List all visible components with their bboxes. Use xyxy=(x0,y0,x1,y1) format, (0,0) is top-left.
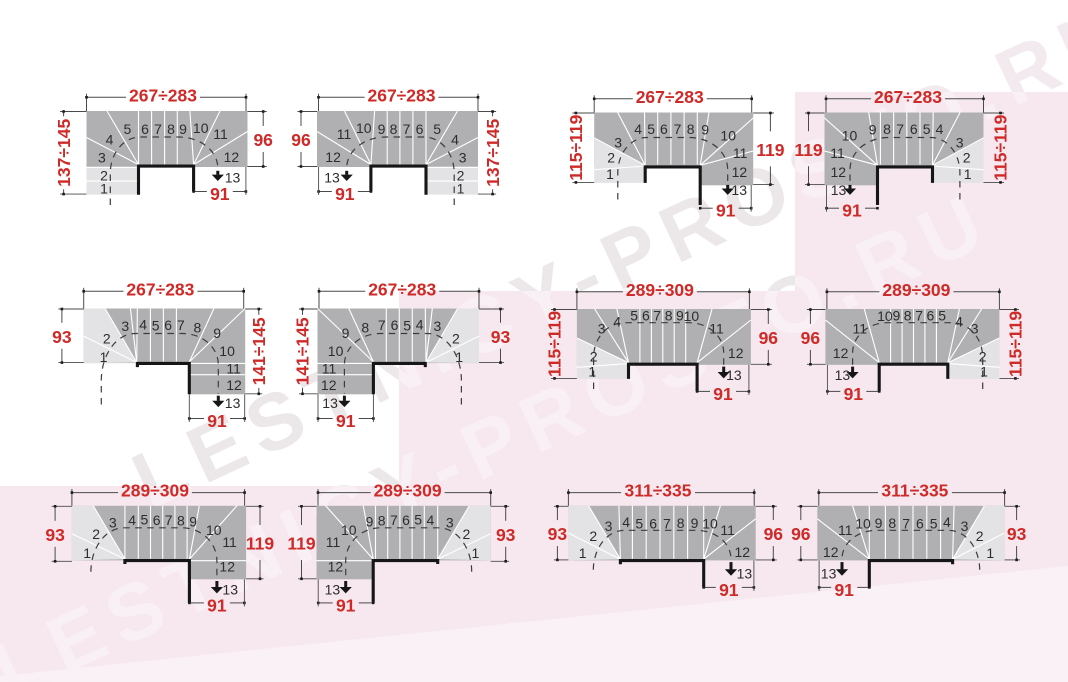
svg-text:8: 8 xyxy=(665,308,673,324)
svg-text:10: 10 xyxy=(193,120,209,136)
svg-text:267÷283: 267÷283 xyxy=(126,279,194,299)
svg-text:7: 7 xyxy=(378,317,386,333)
svg-text:10: 10 xyxy=(702,516,718,532)
svg-text:96: 96 xyxy=(791,524,811,544)
svg-text:91: 91 xyxy=(713,384,733,404)
svg-text:13: 13 xyxy=(726,367,742,383)
svg-text:5: 5 xyxy=(152,318,160,334)
svg-text:11: 11 xyxy=(226,361,241,377)
svg-text:8: 8 xyxy=(194,319,202,335)
svg-text:2: 2 xyxy=(103,331,111,347)
svg-text:12: 12 xyxy=(219,558,235,574)
svg-text:11: 11 xyxy=(213,126,228,142)
svg-text:9: 9 xyxy=(366,513,374,529)
svg-text:3: 3 xyxy=(614,135,622,151)
svg-text:119: 119 xyxy=(794,140,822,160)
svg-text:2: 2 xyxy=(92,526,100,542)
svg-text:141÷145: 141÷145 xyxy=(293,317,313,385)
svg-text:289÷309: 289÷309 xyxy=(374,481,442,501)
svg-text:13: 13 xyxy=(737,565,753,581)
svg-text:4: 4 xyxy=(451,132,459,148)
svg-text:13: 13 xyxy=(731,182,747,198)
svg-text:267÷283: 267÷283 xyxy=(129,85,197,105)
svg-text:93: 93 xyxy=(45,525,65,545)
svg-text:2: 2 xyxy=(590,349,598,365)
svg-text:8: 8 xyxy=(687,121,695,137)
svg-text:4: 4 xyxy=(634,121,642,137)
svg-text:289÷309: 289÷309 xyxy=(882,280,950,300)
svg-text:9: 9 xyxy=(213,325,221,341)
svg-text:311÷335: 311÷335 xyxy=(624,481,691,501)
svg-text:289÷309: 289÷309 xyxy=(121,481,189,501)
svg-text:119: 119 xyxy=(287,534,315,554)
svg-text:10: 10 xyxy=(877,308,893,324)
svg-text:1: 1 xyxy=(588,364,596,380)
svg-text:9: 9 xyxy=(179,121,187,137)
svg-text:267÷283: 267÷283 xyxy=(368,279,436,299)
svg-text:11: 11 xyxy=(326,534,341,550)
svg-text:7: 7 xyxy=(165,512,173,528)
svg-text:137÷145: 137÷145 xyxy=(483,119,503,187)
svg-text:8: 8 xyxy=(177,513,185,529)
svg-text:3: 3 xyxy=(956,135,964,151)
svg-text:3: 3 xyxy=(446,515,454,531)
svg-text:4: 4 xyxy=(955,314,963,330)
svg-text:1: 1 xyxy=(980,364,988,380)
svg-text:5: 5 xyxy=(923,121,931,137)
svg-text:91: 91 xyxy=(335,184,355,204)
svg-text:1: 1 xyxy=(964,166,972,182)
svg-text:96: 96 xyxy=(253,130,273,150)
svg-text:10: 10 xyxy=(855,516,871,532)
svg-text:11: 11 xyxy=(222,534,237,550)
svg-text:3: 3 xyxy=(121,318,129,334)
svg-text:115÷119: 115÷119 xyxy=(1006,311,1026,377)
svg-text:1: 1 xyxy=(472,545,480,561)
svg-text:7: 7 xyxy=(403,121,411,137)
svg-text:3: 3 xyxy=(598,320,606,336)
svg-text:6: 6 xyxy=(164,317,172,333)
svg-text:5: 5 xyxy=(124,121,132,137)
svg-text:12: 12 xyxy=(328,558,344,574)
svg-text:5: 5 xyxy=(930,515,938,531)
svg-text:96: 96 xyxy=(801,328,821,348)
svg-text:4: 4 xyxy=(613,314,621,330)
svg-text:91: 91 xyxy=(207,595,227,615)
svg-text:91: 91 xyxy=(207,411,227,431)
svg-text:8: 8 xyxy=(883,121,891,137)
svg-text:6: 6 xyxy=(141,121,149,137)
svg-text:4: 4 xyxy=(427,512,435,528)
svg-text:115÷119: 115÷119 xyxy=(566,114,586,180)
svg-text:267÷283: 267÷283 xyxy=(874,87,942,107)
svg-text:2: 2 xyxy=(457,168,465,184)
svg-text:10: 10 xyxy=(684,308,700,324)
svg-text:13: 13 xyxy=(225,395,241,411)
svg-text:6: 6 xyxy=(416,121,424,137)
svg-text:8: 8 xyxy=(167,121,175,137)
svg-text:91: 91 xyxy=(336,411,356,431)
svg-text:5: 5 xyxy=(635,515,643,531)
svg-text:9: 9 xyxy=(189,513,197,529)
svg-text:2: 2 xyxy=(976,528,984,544)
svg-text:12: 12 xyxy=(732,164,748,180)
svg-text:10: 10 xyxy=(842,128,858,144)
svg-text:13: 13 xyxy=(835,367,851,383)
svg-text:4: 4 xyxy=(943,514,951,530)
svg-text:7: 7 xyxy=(653,308,661,324)
svg-text:12: 12 xyxy=(321,377,337,393)
svg-text:91: 91 xyxy=(210,184,230,204)
svg-text:93: 93 xyxy=(496,525,516,545)
svg-text:7: 7 xyxy=(896,121,904,137)
svg-text:10: 10 xyxy=(206,522,222,538)
svg-text:12: 12 xyxy=(728,345,744,361)
svg-text:91: 91 xyxy=(842,201,862,221)
svg-text:6: 6 xyxy=(649,515,657,531)
svg-text:6: 6 xyxy=(927,308,935,324)
svg-text:3: 3 xyxy=(98,150,106,166)
svg-text:267÷283: 267÷283 xyxy=(636,87,704,107)
svg-text:3: 3 xyxy=(971,320,979,336)
svg-text:3: 3 xyxy=(434,318,442,334)
svg-text:1: 1 xyxy=(986,545,994,561)
svg-text:11: 11 xyxy=(337,126,352,142)
svg-text:7: 7 xyxy=(902,515,910,531)
svg-text:8: 8 xyxy=(390,121,398,137)
svg-text:12: 12 xyxy=(735,544,751,560)
svg-text:4: 4 xyxy=(416,316,424,332)
svg-text:3: 3 xyxy=(109,515,117,531)
svg-text:3: 3 xyxy=(605,518,613,534)
svg-text:5: 5 xyxy=(141,511,149,527)
svg-text:311÷335: 311÷335 xyxy=(881,481,948,501)
svg-text:1: 1 xyxy=(455,349,463,365)
svg-text:10: 10 xyxy=(720,128,736,144)
svg-text:91: 91 xyxy=(844,384,864,404)
svg-text:2: 2 xyxy=(589,528,597,544)
svg-text:7: 7 xyxy=(390,512,398,528)
svg-text:11: 11 xyxy=(830,145,845,161)
svg-text:119: 119 xyxy=(756,140,784,160)
svg-text:119: 119 xyxy=(246,534,274,554)
svg-text:93: 93 xyxy=(491,327,511,347)
svg-text:12: 12 xyxy=(831,164,847,180)
svg-text:4: 4 xyxy=(936,121,944,137)
svg-text:11: 11 xyxy=(853,321,868,337)
svg-text:8: 8 xyxy=(888,515,896,531)
svg-text:93: 93 xyxy=(52,327,72,347)
svg-text:5: 5 xyxy=(414,511,422,527)
svg-text:8: 8 xyxy=(904,308,912,324)
svg-text:10: 10 xyxy=(328,343,344,359)
svg-text:9: 9 xyxy=(701,122,709,138)
svg-text:7: 7 xyxy=(154,121,162,137)
svg-text:2: 2 xyxy=(979,349,987,365)
svg-text:267÷283: 267÷283 xyxy=(367,85,435,105)
svg-text:6: 6 xyxy=(660,121,668,137)
svg-text:91: 91 xyxy=(834,580,854,600)
svg-text:1: 1 xyxy=(100,349,108,365)
svg-text:12: 12 xyxy=(823,544,839,560)
svg-text:96: 96 xyxy=(759,328,779,348)
svg-text:5: 5 xyxy=(630,308,638,324)
svg-text:12: 12 xyxy=(833,345,849,361)
svg-text:11: 11 xyxy=(720,522,735,538)
svg-text:1: 1 xyxy=(606,166,614,182)
svg-text:4: 4 xyxy=(128,512,136,528)
svg-text:8: 8 xyxy=(677,515,685,531)
svg-text:4: 4 xyxy=(622,514,630,530)
svg-text:11: 11 xyxy=(709,321,724,337)
svg-text:8: 8 xyxy=(361,319,369,335)
svg-text:91: 91 xyxy=(336,595,356,615)
svg-text:11: 11 xyxy=(733,145,748,161)
svg-text:12: 12 xyxy=(226,377,242,393)
svg-text:9: 9 xyxy=(342,325,350,341)
svg-text:2: 2 xyxy=(452,331,460,347)
svg-text:289÷309: 289÷309 xyxy=(626,280,694,300)
svg-text:6: 6 xyxy=(402,512,410,528)
svg-text:2: 2 xyxy=(463,526,471,542)
svg-text:12: 12 xyxy=(325,149,341,165)
svg-text:5: 5 xyxy=(647,121,655,137)
svg-text:115÷119: 115÷119 xyxy=(545,311,565,377)
svg-text:1: 1 xyxy=(579,545,587,561)
svg-text:6: 6 xyxy=(642,308,650,324)
svg-text:3: 3 xyxy=(961,518,969,534)
svg-text:2: 2 xyxy=(607,150,615,166)
svg-text:9: 9 xyxy=(378,121,386,137)
svg-text:9: 9 xyxy=(869,122,877,138)
svg-text:4: 4 xyxy=(106,132,114,148)
svg-text:7: 7 xyxy=(674,121,682,137)
svg-text:10: 10 xyxy=(341,522,357,538)
svg-text:93: 93 xyxy=(548,524,568,544)
svg-text:8: 8 xyxy=(378,513,386,529)
svg-text:6: 6 xyxy=(910,121,918,137)
svg-text:93: 93 xyxy=(1007,524,1027,544)
svg-text:9: 9 xyxy=(893,308,901,324)
svg-text:12: 12 xyxy=(224,149,240,165)
svg-text:7: 7 xyxy=(663,515,671,531)
svg-text:11: 11 xyxy=(322,361,337,377)
svg-text:137÷145: 137÷145 xyxy=(54,119,74,187)
svg-text:3: 3 xyxy=(459,150,467,166)
svg-text:96: 96 xyxy=(764,524,784,544)
svg-text:10: 10 xyxy=(356,120,372,136)
svg-text:6: 6 xyxy=(391,317,399,333)
svg-text:5: 5 xyxy=(433,121,441,137)
svg-text:4: 4 xyxy=(139,316,147,332)
svg-text:6: 6 xyxy=(916,515,924,531)
svg-text:7: 7 xyxy=(915,308,923,324)
svg-text:141÷145: 141÷145 xyxy=(249,317,269,385)
svg-text:11: 11 xyxy=(838,522,853,538)
svg-text:7: 7 xyxy=(177,317,185,333)
svg-text:96: 96 xyxy=(291,130,311,150)
svg-text:2: 2 xyxy=(100,168,108,184)
svg-text:5: 5 xyxy=(403,318,411,334)
svg-text:6: 6 xyxy=(153,512,161,528)
svg-text:10: 10 xyxy=(219,343,235,359)
svg-text:13: 13 xyxy=(322,395,338,411)
svg-text:91: 91 xyxy=(716,201,736,221)
svg-text:2: 2 xyxy=(963,150,971,166)
svg-text:91: 91 xyxy=(719,580,739,600)
svg-text:1: 1 xyxy=(83,545,91,561)
svg-text:5: 5 xyxy=(938,308,946,324)
svg-text:9: 9 xyxy=(691,515,699,531)
svg-text:13: 13 xyxy=(831,182,847,198)
svg-text:9: 9 xyxy=(875,515,883,531)
svg-text:115÷119: 115÷119 xyxy=(991,114,1011,180)
